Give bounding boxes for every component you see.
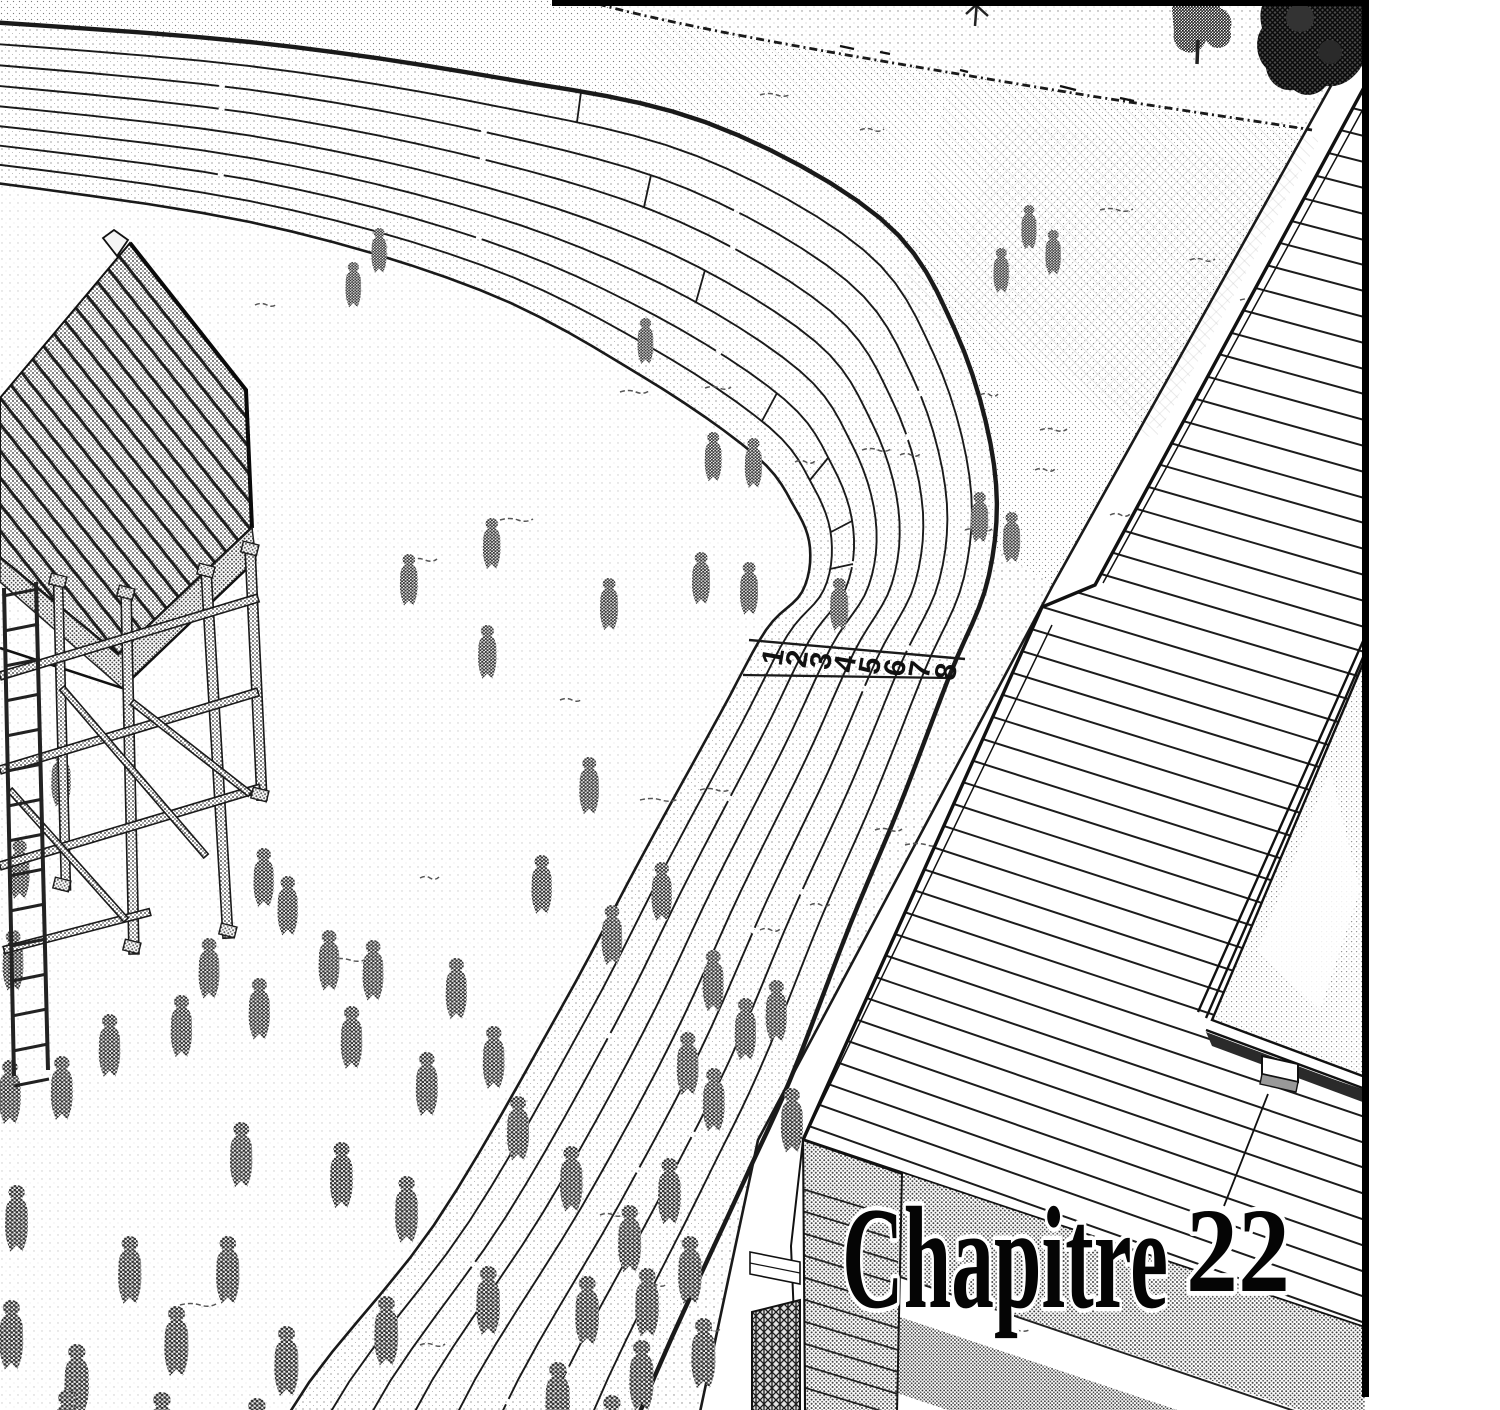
svg-text:22: 22 [1186,1184,1290,1318]
svg-text:Chapitre: Chapitre [842,1177,1168,1339]
